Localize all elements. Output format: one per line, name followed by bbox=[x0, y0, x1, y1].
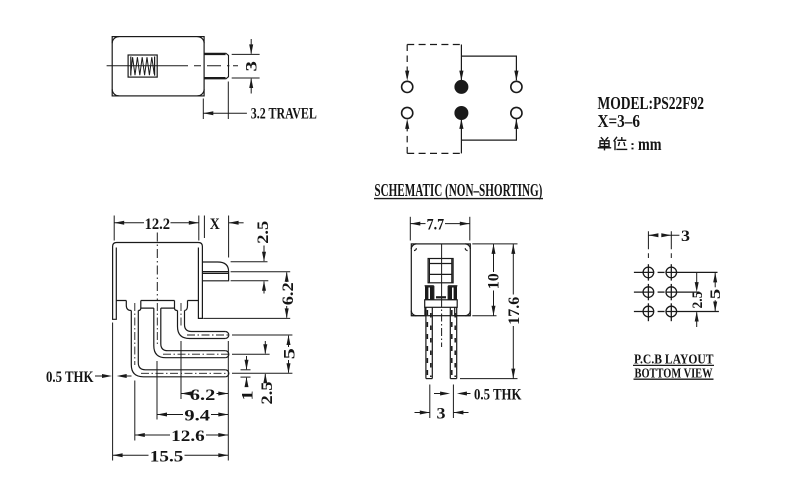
svg-text:10: 10 bbox=[486, 273, 503, 289]
svg-text:2.5: 2.5 bbox=[259, 382, 276, 405]
svg-text:12.2: 12.2 bbox=[145, 216, 171, 233]
svg-text:3: 3 bbox=[681, 228, 690, 245]
svg-text:MODEL:PS22F92: MODEL:PS22F92 bbox=[598, 93, 705, 113]
svg-text:5: 5 bbox=[708, 289, 724, 300]
svg-text:1: 1 bbox=[239, 391, 256, 401]
svg-text:3.2 TRAVEL: 3.2 TRAVEL bbox=[251, 105, 317, 122]
svg-text:2.5: 2.5 bbox=[690, 292, 706, 309]
svg-text:0.5 THK: 0.5 THK bbox=[46, 369, 94, 386]
svg-text:17.6: 17.6 bbox=[506, 297, 523, 325]
svg-text:12.6: 12.6 bbox=[171, 428, 205, 445]
svg-text:2.5: 2.5 bbox=[255, 221, 272, 244]
svg-text:X=3–6: X=3–6 bbox=[598, 111, 641, 131]
svg-text:9.4: 9.4 bbox=[184, 408, 210, 425]
svg-text:6.2: 6.2 bbox=[280, 282, 297, 305]
svg-text:mm: mm bbox=[638, 134, 662, 154]
svg-text:SCHEMATIC (NON–SHORTING): SCHEMATIC (NON–SHORTING) bbox=[374, 180, 542, 200]
svg-text:6.2: 6.2 bbox=[190, 387, 216, 404]
svg-text:7.7: 7.7 bbox=[427, 217, 445, 234]
svg-text:3: 3 bbox=[437, 406, 446, 423]
svg-text:15.5: 15.5 bbox=[150, 449, 184, 466]
svg-text:0.5 THK: 0.5 THK bbox=[474, 387, 522, 404]
svg-text:X: X bbox=[210, 216, 220, 233]
svg-text:3: 3 bbox=[244, 61, 261, 72]
svg-text:5: 5 bbox=[281, 348, 298, 359]
